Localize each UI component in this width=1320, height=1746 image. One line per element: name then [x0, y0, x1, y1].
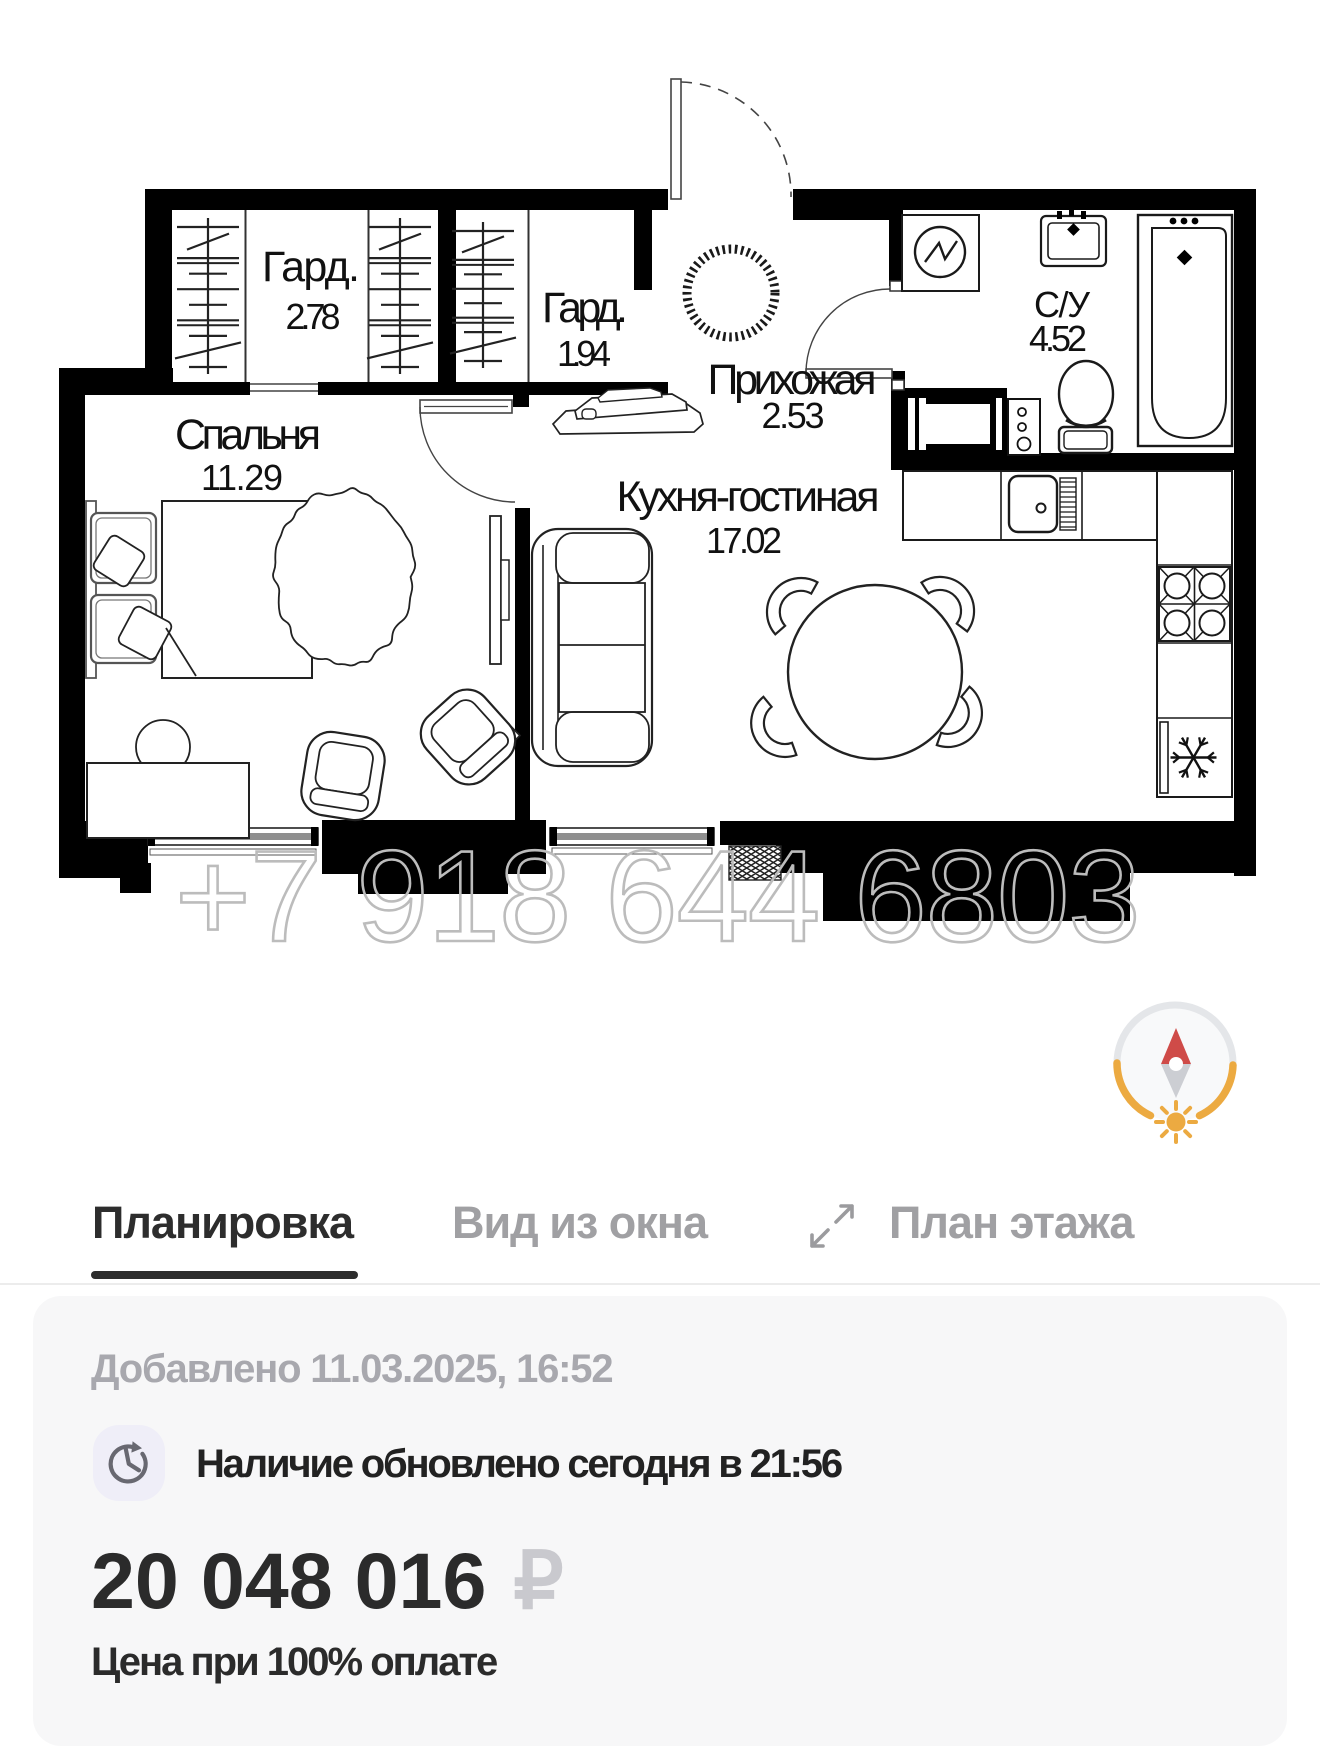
svg-text:Спальня: Спальня: [175, 411, 321, 459]
svg-text:Кухня-гостиная: Кухня-гостиная: [617, 473, 880, 521]
svg-text:Гард.: Гард.: [262, 243, 360, 291]
svg-text:+7 918 644 6803: +7 918 644 6803: [175, 823, 1140, 969]
svg-text:11.29: 11.29: [201, 457, 283, 498]
svg-text:17.02: 17.02: [706, 520, 782, 561]
svg-text:Гард.: Гард.: [542, 284, 628, 332]
svg-text:4.52: 4.52: [1029, 318, 1087, 359]
svg-text:2.78: 2.78: [286, 296, 341, 337]
svg-text:1.94: 1.94: [557, 333, 611, 374]
svg-text:2.53: 2.53: [762, 395, 825, 436]
